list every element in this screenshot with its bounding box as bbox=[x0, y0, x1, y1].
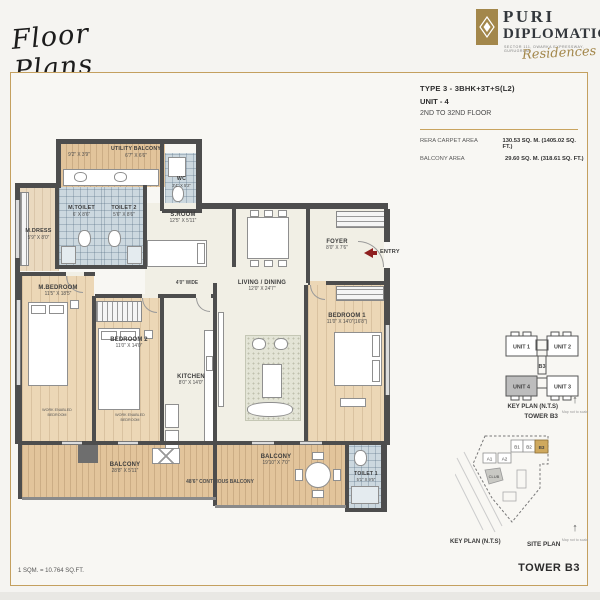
coffee-table bbox=[262, 364, 282, 398]
unit-line: UNIT - 4 bbox=[420, 97, 585, 106]
brand-diamond-icon bbox=[476, 9, 498, 45]
wall-segment bbox=[56, 139, 202, 144]
brand-name-line1: PURI bbox=[503, 7, 555, 27]
label-continuous-balcony: 48'6" CONTINOUS BALCONY bbox=[145, 479, 295, 485]
sliding-door bbox=[62, 441, 82, 445]
tower-footer-label: TOWER B3 bbox=[500, 562, 580, 574]
keyplan-unit3-label: UNIT 3 bbox=[554, 385, 571, 391]
siteplan-b2-label: B2 bbox=[526, 445, 532, 450]
chair bbox=[264, 260, 273, 267]
armchair bbox=[252, 338, 266, 350]
window bbox=[16, 300, 21, 385]
label-wc: WC 3'4" X 5'2" bbox=[166, 176, 197, 188]
washing-machine bbox=[168, 157, 186, 177]
balcony-railing bbox=[215, 505, 346, 508]
wardrobe bbox=[336, 286, 384, 301]
chair bbox=[250, 210, 259, 217]
type-line: TYPE 3 - 3BHK+3T+S(L2) bbox=[420, 84, 585, 93]
north-arrow-icon: ↑ bbox=[568, 394, 582, 410]
window bbox=[385, 325, 390, 395]
page-edge bbox=[0, 592, 600, 600]
tower-key-plan: UNIT 1 UNIT 2 B3 UNIT 4 UNIT 3 bbox=[503, 330, 581, 402]
siteplan-b3-label: B3 bbox=[539, 445, 545, 450]
toilet-pot bbox=[78, 230, 91, 247]
pillow bbox=[197, 243, 205, 264]
shower-area bbox=[61, 246, 76, 264]
label-entry: ENTRY bbox=[380, 249, 400, 255]
refrigerator bbox=[165, 404, 179, 428]
area-value: 29.60 SQ. M. (318.61 SQ. FT.) bbox=[505, 156, 584, 162]
siteplan-a2-label: A2 bbox=[502, 457, 508, 462]
basin bbox=[74, 172, 87, 182]
entry-arrow-tail bbox=[372, 251, 377, 255]
sqm-note: 1 SQM. = 10.764 SQ.FT. bbox=[18, 568, 84, 574]
wall-segment bbox=[213, 283, 217, 444]
pillow bbox=[372, 335, 380, 357]
wall-segment bbox=[56, 139, 61, 188]
wall-segment bbox=[232, 209, 236, 267]
siteplan-caption-right: SITE PLAN bbox=[527, 541, 560, 548]
nightstand bbox=[70, 300, 79, 309]
wall-segment bbox=[18, 443, 22, 499]
sliding-door bbox=[118, 441, 138, 445]
dining-table bbox=[247, 217, 289, 259]
pillow bbox=[49, 305, 64, 314]
keyplan-unit2-label: UNIT 2 bbox=[554, 345, 571, 351]
wall-segment bbox=[200, 203, 388, 209]
brand-name-line2: DIPLOMATIC bbox=[503, 26, 600, 43]
siteplan-club-label: CLUB bbox=[489, 474, 500, 479]
toilet-pot bbox=[108, 230, 121, 247]
siteplan-b1-label: B1 bbox=[514, 445, 520, 450]
label-kitchen: KITCHEN 8'0" X 14'0" bbox=[169, 373, 212, 386]
patio-chair bbox=[312, 452, 324, 460]
bed bbox=[28, 302, 68, 386]
wall-segment bbox=[160, 296, 164, 444]
siteplan-a1-label: A1 bbox=[487, 457, 493, 462]
label-foyer: FOYER 8'0" X 7'6" bbox=[317, 238, 356, 251]
pillow bbox=[372, 360, 380, 382]
armchair bbox=[274, 338, 288, 350]
label-work-enabled: WORK ENABLED BEDROOM bbox=[38, 407, 77, 417]
basin bbox=[114, 172, 127, 182]
wall-segment bbox=[22, 272, 95, 276]
wall-segment bbox=[143, 185, 147, 269]
area-value: 130.53 SQ. M. (1405.02 SQ. FT.) bbox=[502, 138, 585, 150]
patio-chair bbox=[312, 490, 324, 498]
area-label: BALCONY AREA bbox=[420, 156, 505, 162]
shoe-cabinet bbox=[336, 211, 386, 228]
label-utility-dim2: 9'2" X 3'9" bbox=[59, 152, 98, 158]
label-corridor: 4'0" WIDE bbox=[160, 281, 215, 287]
shower-area bbox=[351, 486, 379, 504]
label-bedroom2: BEDROOM 2 11'0" X 14'0" bbox=[100, 336, 158, 349]
wall-segment bbox=[306, 209, 310, 283]
wc-pot bbox=[172, 186, 184, 202]
chair bbox=[278, 210, 287, 217]
page-title: Floor Plans bbox=[10, 11, 174, 73]
keyplan-tower-caption: TOWER B3 bbox=[468, 413, 558, 420]
info-divider bbox=[420, 129, 578, 130]
kitchen-sink bbox=[206, 356, 213, 371]
tv-console bbox=[218, 312, 224, 407]
keyplan-tower-label: B3 bbox=[539, 364, 546, 370]
label-m-dress: M.DRESS 5'9" X 8'0" bbox=[19, 228, 58, 241]
door-opening bbox=[384, 242, 390, 268]
label-m-toilet: M.TOILET 6' X 8'6" bbox=[60, 205, 102, 218]
wall-segment bbox=[384, 209, 390, 244]
balcony-railing bbox=[22, 497, 216, 500]
keyplan-caption: KEY PLAN (N.T.S) bbox=[468, 404, 558, 410]
patio-chair bbox=[295, 469, 303, 481]
sliding-door bbox=[300, 441, 322, 445]
label-utility-balcony: UTILITY BALCONY 6'7" X 6'6" bbox=[105, 146, 167, 159]
toilet-pot bbox=[354, 450, 367, 466]
chair bbox=[264, 210, 273, 217]
label-toilet1: TOILET 1 5'1" X 9'5" bbox=[348, 471, 384, 483]
wall-segment bbox=[345, 508, 387, 512]
map-note: Map not to scale bbox=[558, 538, 592, 542]
chair bbox=[250, 260, 259, 267]
label-bedroom1: BEDROOM 1 11'0" X 14'0"(16'8") bbox=[314, 312, 380, 325]
wall-segment bbox=[304, 285, 308, 444]
label-balcony-left: BALCONY 28'8" X 5'11" bbox=[92, 461, 158, 474]
unit-info: TYPE 3 - 3BHK+3T+S(L2) UNIT - 4 2ND TO 3… bbox=[420, 84, 585, 162]
keyplan-unit4-label: UNIT 4 bbox=[513, 385, 530, 391]
label-s-room: S.ROOM 12'5" X 5'11" bbox=[152, 211, 214, 224]
wall-segment bbox=[57, 265, 147, 269]
area-label: RERA CARPET AREA bbox=[420, 138, 502, 150]
pillow bbox=[31, 305, 46, 314]
brand-script: Residences bbox=[522, 44, 593, 63]
floor-line: 2ND TO 32ND FLOOR bbox=[420, 110, 585, 117]
wall-segment bbox=[55, 185, 59, 269]
keyplan-unit1-label: UNIT 1 bbox=[513, 345, 530, 351]
site-plan: B1 B2 B3 A1 A2 CLUB bbox=[455, 430, 557, 534]
label-work-enabled: WORK ENABLED BEDROOM bbox=[110, 412, 150, 422]
chair bbox=[278, 260, 287, 267]
siteplan-caption-left: KEY PLAN (N.T.S) bbox=[450, 539, 501, 545]
patio-chair bbox=[333, 469, 341, 481]
map-note: Map not to scale bbox=[558, 410, 592, 414]
label-balcony-right: BALCONY 19'10" X 7'0" bbox=[242, 453, 310, 466]
north-arrow-icon: ↑ bbox=[568, 522, 582, 538]
label-m-bedroom: M.BEDROOM 11'5" X 18'5" bbox=[26, 284, 90, 297]
label-living: LIVING / DINING 12'0" X 24'7" bbox=[224, 279, 299, 292]
sofa bbox=[247, 402, 293, 417]
sliding-door bbox=[252, 441, 274, 445]
bench bbox=[340, 398, 366, 407]
wall-segment bbox=[92, 296, 96, 444]
label-toilet2: TOILET 2 5'6" X 8'6" bbox=[105, 205, 143, 218]
shower-area bbox=[127, 246, 142, 264]
brand-logo: PURI DIPLOMATIC SECTOR 111, DWARKA EXPRE… bbox=[474, 6, 592, 64]
wardrobe bbox=[96, 301, 142, 322]
